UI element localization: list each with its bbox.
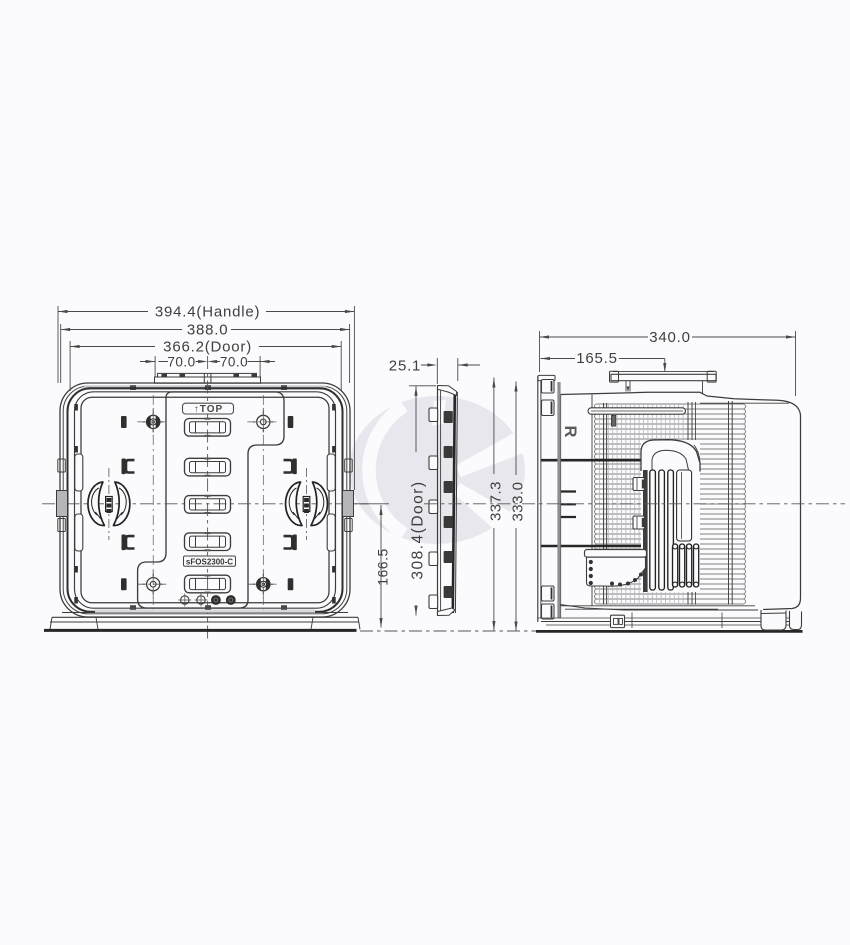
- svg-text:165.5: 165.5: [576, 350, 618, 367]
- svg-text:388.0: 388.0: [187, 321, 229, 338]
- svg-text:70.0: 70.0: [220, 354, 248, 369]
- svg-text:394.4(Handle): 394.4(Handle): [155, 303, 260, 320]
- svg-text:308.4(Door): 308.4(Door): [410, 480, 427, 579]
- svg-text:366.2(Door): 366.2(Door): [163, 338, 252, 355]
- svg-text:↑TOP: ↑TOP: [194, 404, 223, 415]
- svg-text:sFOS2300-C: sFOS2300-C: [186, 557, 233, 566]
- svg-text:333.0: 333.0: [510, 481, 527, 521]
- svg-text:25.1: 25.1: [389, 358, 421, 375]
- svg-text:R: R: [561, 426, 579, 438]
- svg-text:70.0: 70.0: [167, 354, 195, 369]
- svg-text:337.3: 337.3: [488, 481, 505, 521]
- svg-text:166.5: 166.5: [375, 548, 391, 586]
- svg-text:340.0: 340.0: [649, 329, 691, 346]
